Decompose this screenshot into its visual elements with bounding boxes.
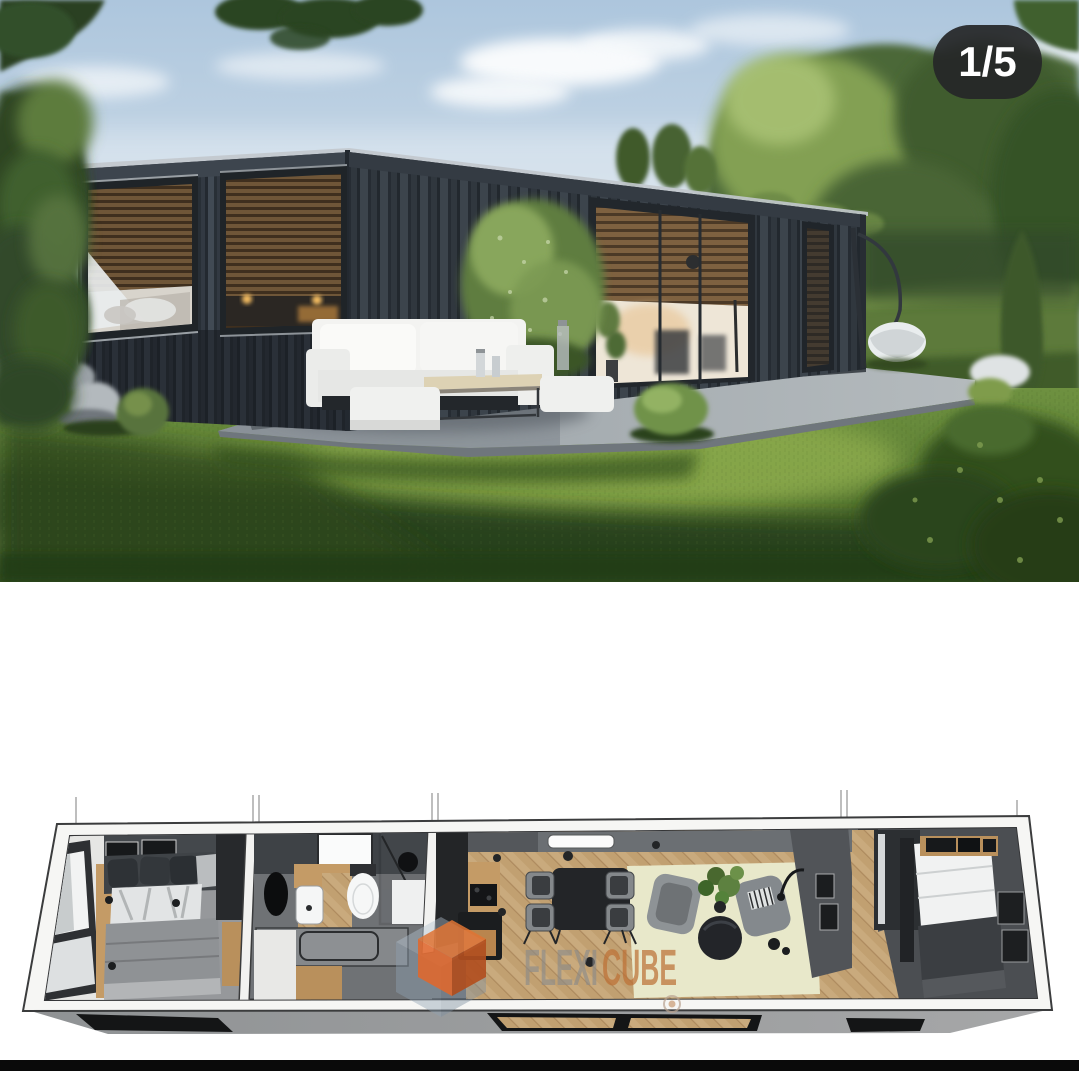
svg-text:CUBE: CUBE (602, 939, 677, 996)
svg-text:FLEXI: FLEXI (524, 939, 598, 996)
